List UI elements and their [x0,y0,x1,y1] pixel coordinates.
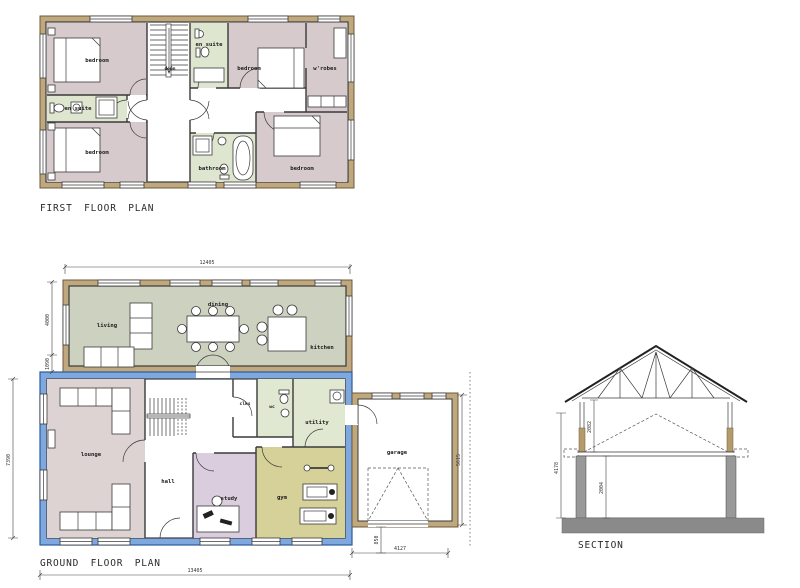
label-bathroom: bathroom [199,166,227,172]
dim-garage-door-offset: 850 [374,535,380,544]
label-bedroom-br: bedroom [290,166,314,172]
dim-ground-floor-height: 2004 [599,482,605,494]
architectural-drawing-sheet: bedroom en suite bedroom down en suite b… [0,0,800,588]
dim-first-floor-height: 2082 [587,421,593,433]
label-gym: gym [277,495,288,501]
label-bedroom-tr: bedroom [237,66,261,72]
label-lounge: lounge [81,452,102,458]
dim-total-width: 13405 [187,568,202,574]
label-study: study [221,496,238,502]
label-bedroom-tl: bedroom [85,58,109,64]
label-clks: clks [239,401,250,407]
dim-garage-depth: 5615 [456,454,462,466]
garage-side-door-gap [345,405,358,425]
label-wc: wc [269,405,275,410]
bed-bottom-right [274,116,320,156]
label-kitchen: kitchen [310,345,334,351]
section-drawing: 4178 2082 2004 SECTION [554,346,764,551]
sheet-svg: bedroom en suite bedroom down en suite b… [0,0,800,588]
label-living: living [97,323,117,329]
foundation [562,518,764,533]
label-bedroom-bl: bedroom [85,150,109,156]
label-hall: hall [161,479,174,485]
dim-overall-width: 12405 [199,260,214,266]
lounge-side-table [48,430,55,448]
garage-block [345,393,458,527]
label-ensuite-top: en suite [196,42,224,48]
label-dining: dining [208,302,228,308]
sofa-horizontal [84,347,134,367]
garage-floor [358,399,452,521]
label-utility: utility [305,420,329,426]
dim-garage-width: 4127 [394,546,406,552]
utility-appliance [330,390,344,403]
section-title: SECTION [578,540,624,551]
label-garage: garage [387,450,408,456]
label-down: down [164,66,175,72]
first-floor-plan: bedroom en suite bedroom down en suite b… [40,16,354,214]
dim-overall-depth: 7390 [6,454,12,466]
vaulted-ceiling-dashed [584,414,728,452]
dim-living-depth: 4000 [45,314,51,326]
upper-walls [579,402,733,452]
floor-slab [578,452,734,456]
dim-bay-offset: 1090 [45,358,51,370]
label-ensuite-left: en suite [65,106,93,112]
bed-top-right [258,48,304,88]
ground-floor-title: GROUND FLOOR PLAN [40,558,161,569]
garage-windows [372,393,446,399]
ground-floor-plan: 12405 4000 1090 7390 5615 4127 850 13405… [6,260,470,580]
sofa-vertical [130,303,152,349]
dim-overall-height: 4178 [554,462,560,474]
label-wrobes: w'robes [313,66,337,72]
first-floor-title: FIRST FLOOR PLAN [40,203,154,214]
